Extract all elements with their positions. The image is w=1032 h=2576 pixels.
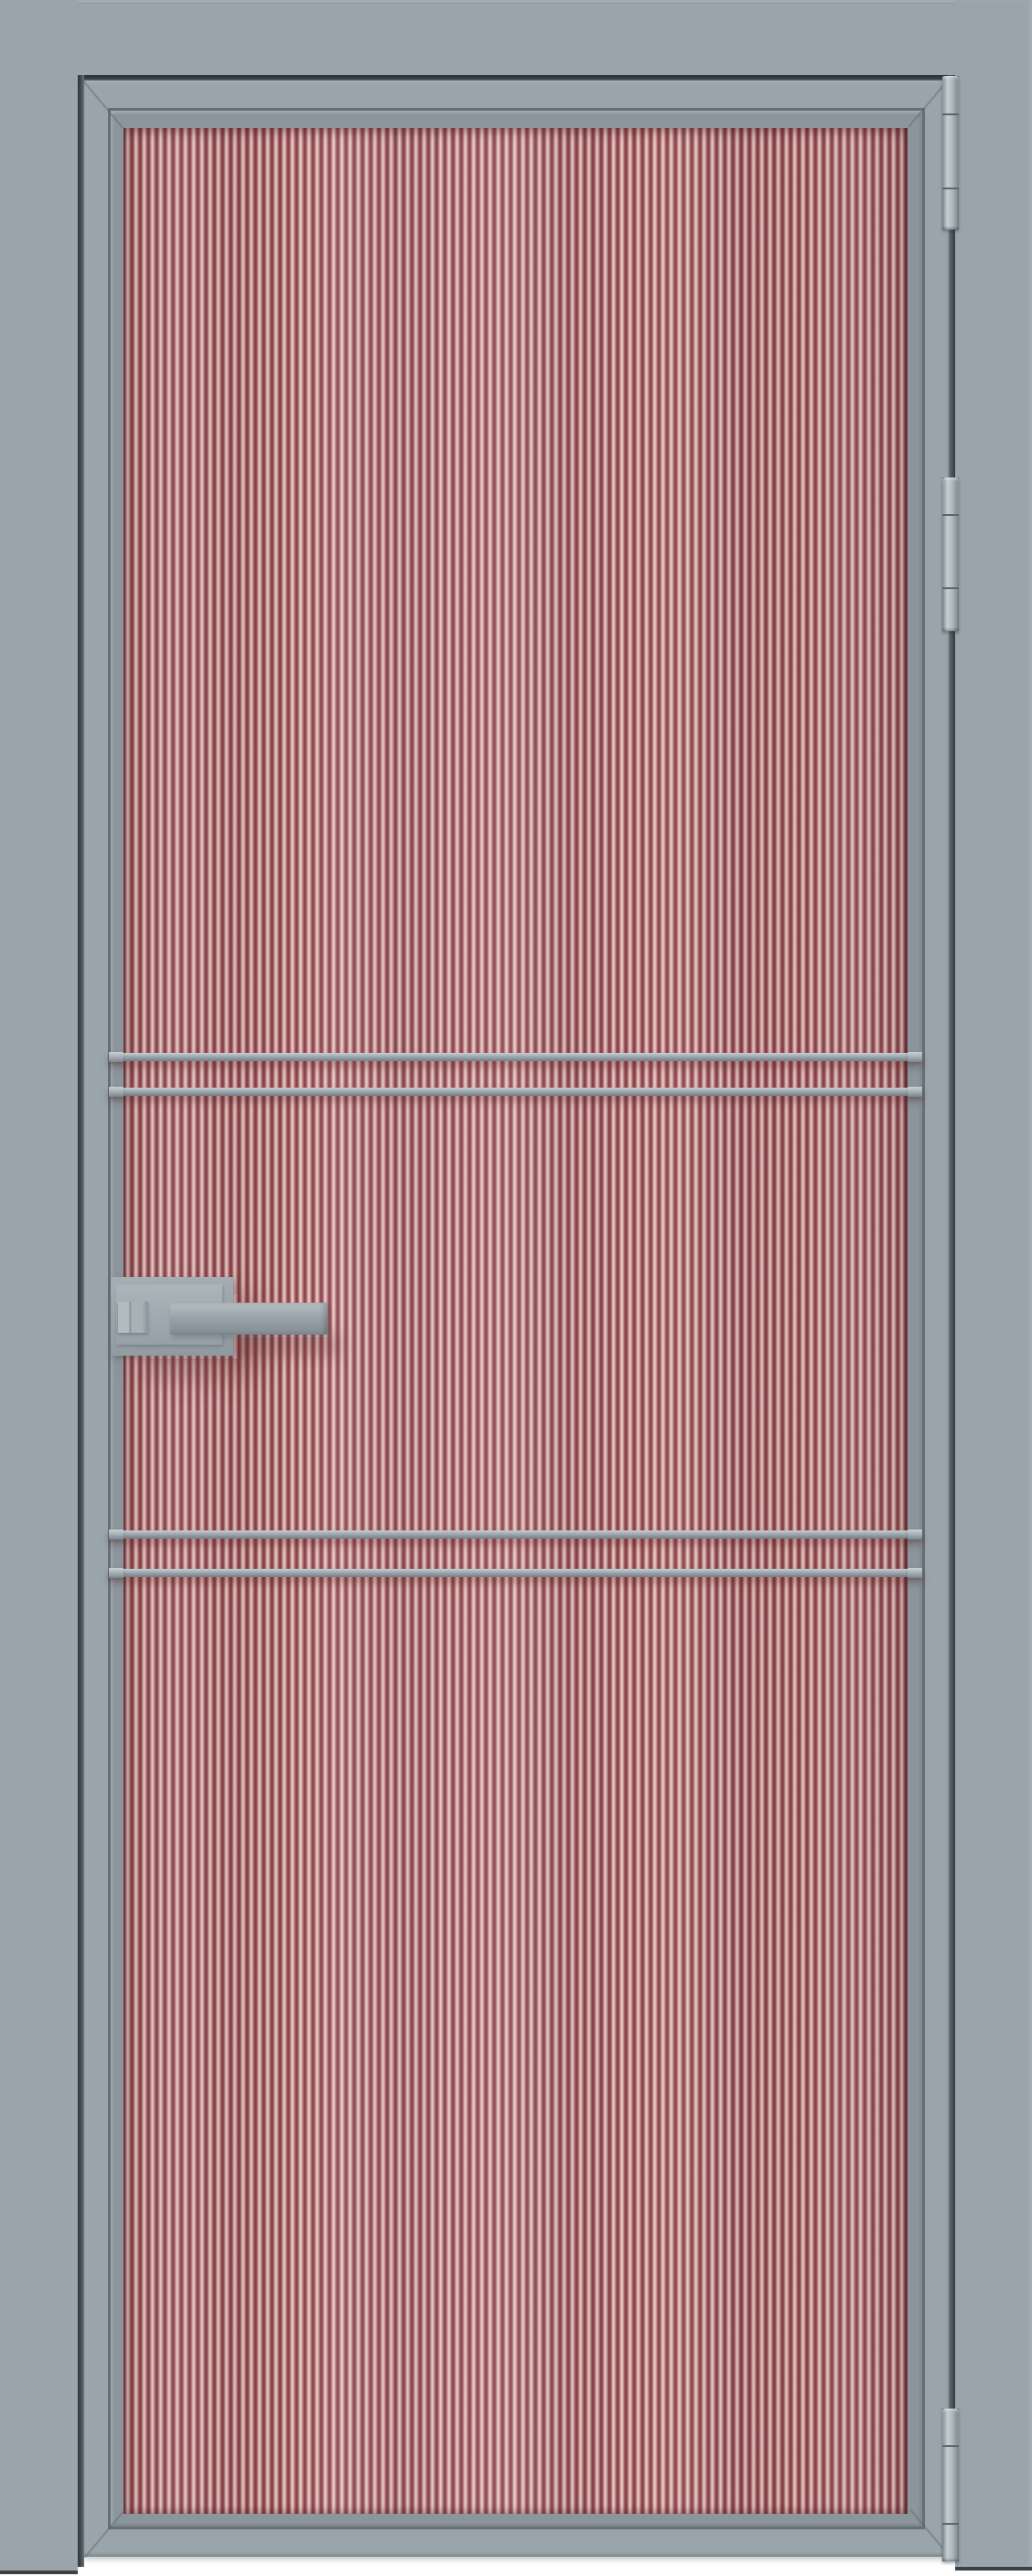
lock-cylinder (118, 1302, 148, 1333)
hinge-top (942, 76, 959, 230)
wall-top (0, 0, 1032, 75)
hinge-middle-knuckle-1 (942, 478, 959, 514)
hinge-top-knuckle-3 (942, 189, 959, 230)
hinge-bottom (942, 2409, 959, 2561)
door-product-render (0, 0, 1032, 2576)
hinge-top-knuckle-2 (942, 115, 959, 188)
wall-right (955, 0, 1032, 2567)
handle-lever (170, 1303, 328, 1335)
door-reveal-right (949, 75, 955, 2560)
hinge-middle-knuckle-2 (942, 516, 959, 587)
wall-left (0, 0, 78, 2571)
glazing-bar-4 (109, 1569, 922, 1577)
hinge-bottom-knuckle-2 (942, 2447, 959, 2523)
hinge-bottom-knuckle-3 (942, 2525, 959, 2561)
door-reveal-left (78, 75, 84, 2567)
hinge-bottom-knuckle-1 (942, 2409, 959, 2445)
glazing-bar-3 (109, 1530, 922, 1539)
glazing-bar-2 (109, 1088, 922, 1096)
hinge-top-knuckle-1 (942, 76, 959, 113)
hinge-middle-knuckle-3 (942, 589, 959, 631)
glazing-bar-1 (109, 1053, 922, 1061)
hinge-middle (942, 478, 959, 631)
